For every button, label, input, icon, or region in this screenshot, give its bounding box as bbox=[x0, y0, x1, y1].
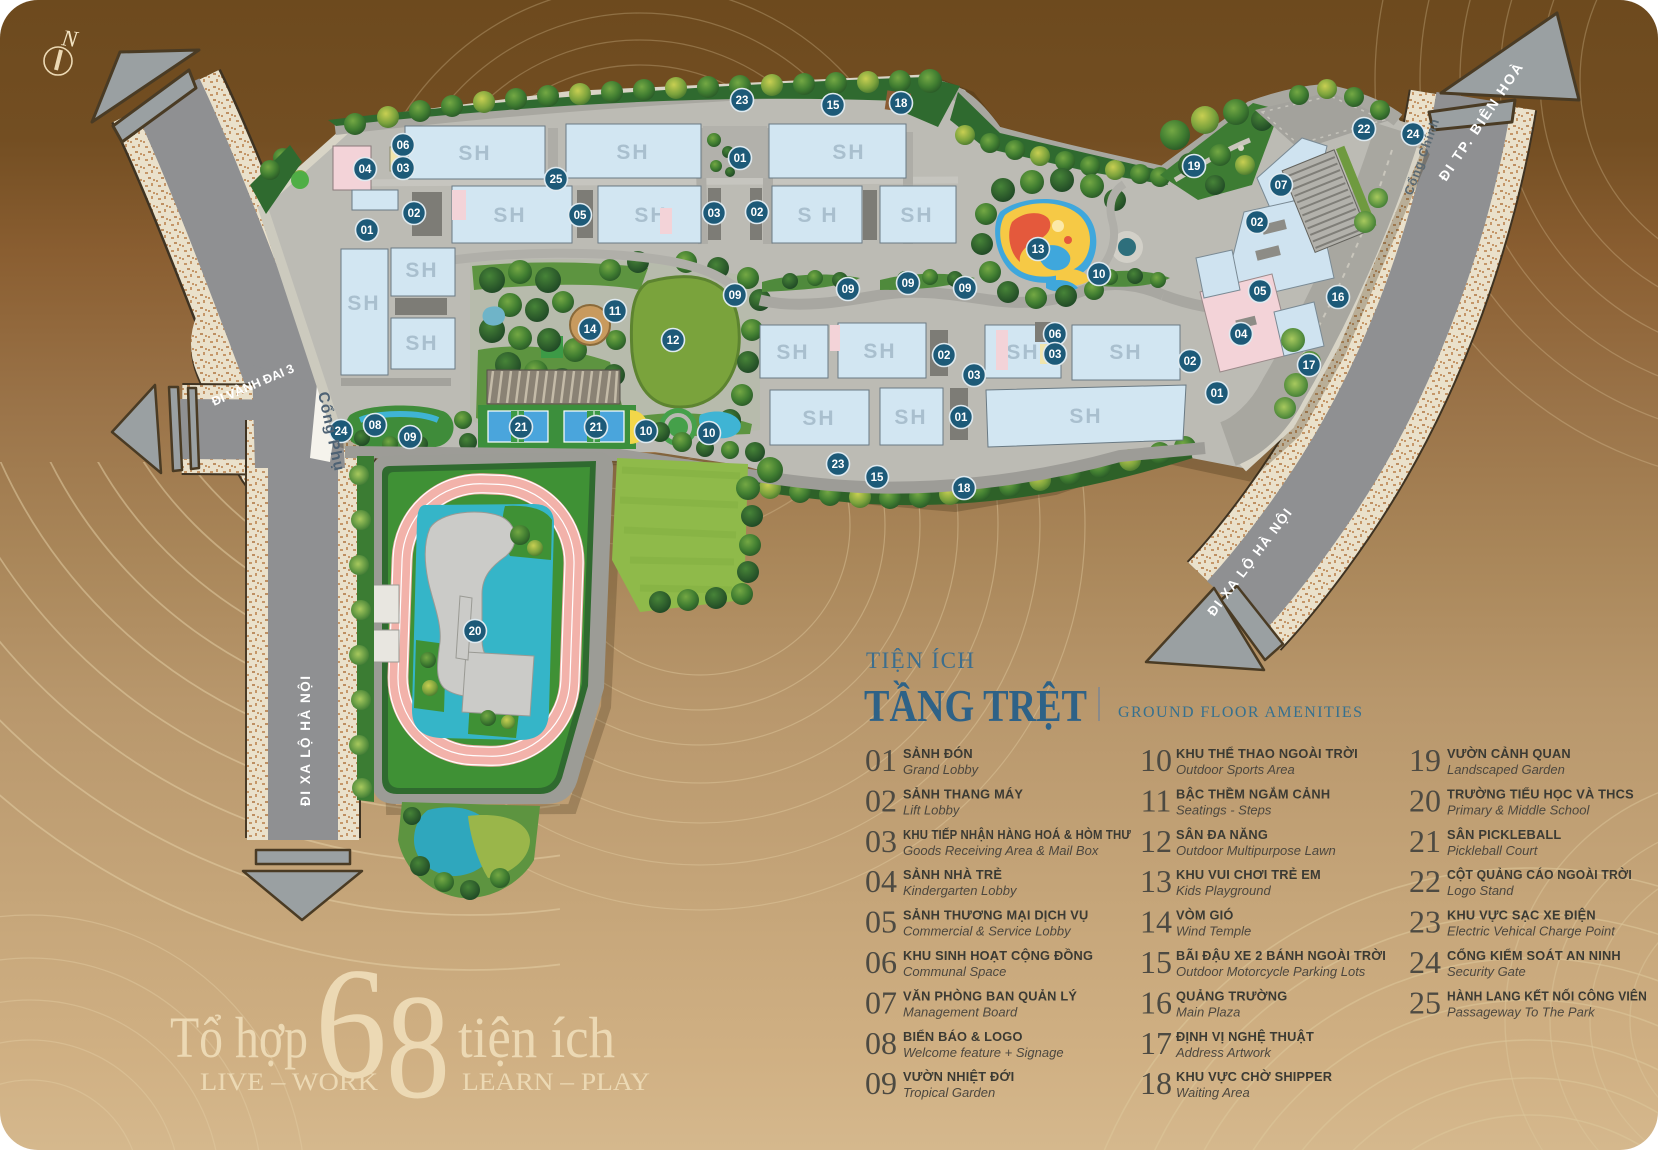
svg-text:01: 01 bbox=[865, 742, 897, 778]
svg-text:tiện ích: tiện ích bbox=[458, 1005, 615, 1070]
svg-text:Pickleball Court: Pickleball Court bbox=[1447, 843, 1539, 858]
svg-text:SẢNH THANG MÁY: SẢNH THANG MÁY bbox=[903, 786, 1023, 801]
svg-text:21: 21 bbox=[1409, 823, 1441, 859]
svg-text:Management Board: Management Board bbox=[903, 1004, 1018, 1019]
svg-text:01: 01 bbox=[361, 225, 374, 237]
svg-text:SẢNH ĐÓN: SẢNH ĐÓN bbox=[903, 746, 973, 761]
svg-text:02: 02 bbox=[408, 208, 421, 220]
svg-text:SH: SH bbox=[493, 204, 526, 227]
svg-text:09: 09 bbox=[902, 278, 915, 290]
svg-text:23: 23 bbox=[1409, 904, 1441, 940]
svg-text:16: 16 bbox=[1140, 984, 1172, 1020]
svg-text:24: 24 bbox=[1409, 944, 1441, 980]
svg-text:SH: SH bbox=[1069, 405, 1102, 428]
svg-text:CỔNG KIỂM SOÁT AN NINH: CỔNG KIỂM SOÁT AN NINH bbox=[1447, 948, 1621, 963]
svg-text:Kindergarten Lobby: Kindergarten Lobby bbox=[903, 883, 1018, 898]
svg-text:15: 15 bbox=[827, 100, 840, 112]
svg-text:09: 09 bbox=[729, 290, 742, 302]
svg-text:02: 02 bbox=[938, 350, 951, 362]
svg-text:KHU VUI CHƠI TRẺ EM: KHU VUI CHƠI TRẺ EM bbox=[1176, 867, 1321, 882]
svg-text:02: 02 bbox=[865, 782, 897, 818]
svg-text:SH: SH bbox=[405, 332, 438, 355]
svg-text:15: 15 bbox=[871, 472, 884, 484]
svg-text:10: 10 bbox=[1140, 742, 1172, 778]
svg-text:11: 11 bbox=[609, 306, 622, 318]
svg-text:VƯỜN NHIỆT ĐỚI: VƯỜN NHIỆT ĐỚI bbox=[903, 1069, 1014, 1084]
svg-text:07: 07 bbox=[1275, 180, 1288, 192]
svg-text:BÃI ĐẬU XE 2 BÁNH NGOÀI TRỜI: BÃI ĐẬU XE 2 BÁNH NGOÀI TRỜI bbox=[1176, 948, 1386, 963]
svg-text:Outdoor Motorcycle Parking Lot: Outdoor Motorcycle Parking Lots bbox=[1176, 964, 1366, 979]
svg-text:LEARN – PLAY: LEARN – PLAY bbox=[462, 1069, 650, 1096]
svg-text:Electric Vehical Charge Point: Electric Vehical Charge Point bbox=[1447, 924, 1616, 939]
svg-text:SH: SH bbox=[832, 141, 865, 164]
svg-text:20: 20 bbox=[1409, 782, 1441, 818]
svg-text:08: 08 bbox=[865, 1025, 897, 1061]
svg-text:13: 13 bbox=[1032, 244, 1045, 256]
svg-text:21: 21 bbox=[590, 422, 603, 434]
svg-text:Landscaped Garden: Landscaped Garden bbox=[1447, 762, 1565, 777]
svg-text:03: 03 bbox=[1049, 349, 1062, 361]
svg-text:VĂN PHÒNG BAN QUẢN LÝ: VĂN PHÒNG BAN QUẢN LÝ bbox=[903, 988, 1077, 1003]
svg-text:23: 23 bbox=[736, 95, 749, 107]
svg-text:BIỂN BÁO & LOGO: BIỂN BÁO & LOGO bbox=[903, 1029, 1023, 1044]
svg-text:SH: SH bbox=[863, 340, 896, 363]
svg-text:14: 14 bbox=[584, 324, 597, 336]
svg-text:Outdoor Multipurpose Lawn: Outdoor Multipurpose Lawn bbox=[1176, 843, 1336, 858]
svg-text:Address Artwork: Address Artwork bbox=[1175, 1045, 1272, 1060]
svg-text:04: 04 bbox=[1235, 329, 1248, 341]
svg-text:Tổ hợp: Tổ hợp bbox=[170, 1005, 308, 1070]
svg-text:Logo Stand: Logo Stand bbox=[1447, 883, 1514, 898]
svg-text:09: 09 bbox=[865, 1065, 897, 1101]
svg-text:06: 06 bbox=[1049, 329, 1062, 341]
svg-text:KHU VỰC CHỜ SHIPPER: KHU VỰC CHỜ SHIPPER bbox=[1176, 1069, 1332, 1084]
svg-text:17: 17 bbox=[1140, 1025, 1172, 1061]
svg-text:TRƯỜNG TIỂU HỌC VÀ THCS: TRƯỜNG TIỂU HỌC VÀ THCS bbox=[1447, 786, 1634, 801]
svg-text:SH: SH bbox=[405, 259, 438, 282]
svg-text:Wind Temple: Wind Temple bbox=[1176, 924, 1251, 939]
svg-text:10: 10 bbox=[703, 428, 716, 440]
svg-text:LIVE – WORK: LIVE – WORK bbox=[200, 1069, 378, 1096]
svg-text:Outdoor Sports Area: Outdoor Sports Area bbox=[1176, 762, 1295, 777]
svg-text:12: 12 bbox=[667, 335, 680, 347]
svg-text:Main Plaza: Main Plaza bbox=[1176, 1004, 1240, 1019]
svg-text:02: 02 bbox=[1251, 217, 1264, 229]
svg-text:HÀNH LANG KẾT NỐI CÔNG VIÊN: HÀNH LANG KẾT NỐI CÔNG VIÊN bbox=[1447, 988, 1647, 1003]
svg-text:Goods Receiving Area & Mail Bo: Goods Receiving Area & Mail Box bbox=[903, 843, 1099, 858]
svg-text:20: 20 bbox=[469, 626, 482, 638]
svg-text:SÂN ĐA NĂNG: SÂN ĐA NĂNG bbox=[1176, 827, 1268, 842]
svg-text:SÂN PICKLEBALL: SÂN PICKLEBALL bbox=[1447, 827, 1561, 842]
svg-text:Primary & Middle School: Primary & Middle School bbox=[1447, 802, 1590, 817]
svg-text:10: 10 bbox=[640, 426, 653, 438]
svg-text:Kids Playground: Kids Playground bbox=[1176, 883, 1271, 898]
svg-text:KHU SINH HOẠT CỘNG ĐỒNG: KHU SINH HOẠT CỘNG ĐỒNG bbox=[903, 948, 1093, 963]
svg-text:16: 16 bbox=[1332, 292, 1345, 304]
svg-text:SH: SH bbox=[458, 142, 491, 165]
svg-text:8: 8 bbox=[386, 964, 450, 1130]
svg-text:03: 03 bbox=[708, 208, 721, 220]
svg-text:KHU THỂ THAO NGOÀI TRỜI: KHU THỂ THAO NGOÀI TRỜI bbox=[1176, 746, 1358, 761]
svg-text:SH: SH bbox=[1006, 341, 1039, 364]
svg-text:06: 06 bbox=[397, 140, 410, 152]
svg-text:SẢNH THƯƠNG MẠI DỊCH VỤ: SẢNH THƯƠNG MẠI DỊCH VỤ bbox=[903, 908, 1088, 923]
svg-text:Lift Lobby: Lift Lobby bbox=[903, 802, 961, 817]
svg-text:Waiting Area: Waiting Area bbox=[1176, 1085, 1250, 1100]
svg-text:Communal Space: Communal Space bbox=[903, 964, 1006, 979]
svg-text:01: 01 bbox=[734, 153, 747, 165]
svg-text:13: 13 bbox=[1140, 863, 1172, 899]
svg-text:03: 03 bbox=[968, 370, 981, 382]
svg-text:12: 12 bbox=[1140, 823, 1172, 859]
svg-text:Grand Lobby: Grand Lobby bbox=[903, 762, 980, 777]
svg-text:09: 09 bbox=[959, 283, 972, 295]
svg-text:SH: SH bbox=[1109, 341, 1142, 364]
svg-text:07: 07 bbox=[865, 984, 897, 1020]
svg-text:SH: SH bbox=[776, 341, 809, 364]
svg-text:Security Gate: Security Gate bbox=[1447, 964, 1526, 979]
svg-text:22: 22 bbox=[1358, 124, 1371, 136]
svg-text:01: 01 bbox=[1211, 388, 1224, 400]
svg-text:KHU TIẾP NHẬN HÀNG HOÁ & HÒM T: KHU TIẾP NHẬN HÀNG HOÁ & HÒM THƯ bbox=[903, 827, 1131, 842]
svg-text:SẢNH NHÀ TRẺ: SẢNH NHÀ TRẺ bbox=[903, 867, 1002, 882]
svg-text:04: 04 bbox=[359, 164, 372, 176]
svg-text:06: 06 bbox=[865, 944, 897, 980]
svg-text:Passageway To The Park: Passageway To The Park bbox=[1447, 1004, 1596, 1019]
svg-text:CỘT QUẢNG CÁO NGOÀI TRỜI: CỘT QUẢNG CÁO NGOÀI TRỜI bbox=[1447, 867, 1632, 882]
svg-text:09: 09 bbox=[404, 432, 417, 444]
svg-text:SH: SH bbox=[616, 141, 649, 164]
svg-text:19: 19 bbox=[1409, 742, 1441, 778]
svg-text:QUẢNG TRƯỜNG: QUẢNG TRƯỜNG bbox=[1176, 988, 1287, 1003]
svg-text:25: 25 bbox=[1409, 984, 1441, 1020]
svg-text:19: 19 bbox=[1188, 161, 1201, 173]
svg-text:18: 18 bbox=[958, 483, 971, 495]
svg-text:25: 25 bbox=[550, 174, 563, 186]
svg-text:GROUND FLOOR AMENITIES: GROUND FLOOR AMENITIES bbox=[1118, 704, 1362, 721]
svg-text:Commercial & Service Lobby: Commercial & Service Lobby bbox=[903, 924, 1072, 939]
svg-text:SH: SH bbox=[802, 407, 835, 430]
svg-text:BẬC THỀM NGẮM CẢNH: BẬC THỀM NGẮM CẢNH bbox=[1176, 786, 1330, 801]
svg-text:SH: SH bbox=[894, 406, 927, 429]
svg-text:24: 24 bbox=[1407, 129, 1420, 141]
svg-text:Welcome feature + Signage: Welcome feature + Signage bbox=[903, 1045, 1064, 1060]
svg-text:17: 17 bbox=[1303, 360, 1316, 372]
svg-text:01: 01 bbox=[955, 412, 968, 424]
svg-text:15: 15 bbox=[1140, 944, 1172, 980]
svg-text:TIỆN ÍCH: TIỆN ÍCH bbox=[866, 648, 974, 673]
svg-text:S H: S H bbox=[797, 204, 838, 227]
svg-text:TẦNG TRỆT: TẦNG TRỆT bbox=[864, 679, 1087, 731]
svg-text:03: 03 bbox=[865, 823, 897, 859]
svg-text:21: 21 bbox=[515, 422, 528, 434]
svg-text:05: 05 bbox=[574, 210, 587, 222]
svg-text:VÒM GIÓ: VÒM GIÓ bbox=[1176, 908, 1234, 923]
svg-text:SH: SH bbox=[900, 204, 933, 227]
svg-text:ĐỊNH VỊ NGHỆ THUẬT: ĐỊNH VỊ NGHỆ THUẬT bbox=[1176, 1029, 1314, 1044]
svg-text:05: 05 bbox=[865, 904, 897, 940]
svg-text:Tropical Garden: Tropical Garden bbox=[903, 1085, 995, 1100]
svg-text:ĐI XA LỘ HÀ NỘI: ĐI XA LỘ HÀ NỘI bbox=[298, 674, 313, 806]
svg-text:03: 03 bbox=[397, 163, 410, 175]
svg-text:10: 10 bbox=[1093, 269, 1106, 281]
svg-text:09: 09 bbox=[842, 284, 855, 296]
svg-text:08: 08 bbox=[369, 420, 382, 432]
svg-text:18: 18 bbox=[895, 98, 908, 110]
svg-text:22: 22 bbox=[1409, 863, 1441, 899]
svg-text:05: 05 bbox=[1254, 286, 1267, 298]
svg-text:11: 11 bbox=[1141, 782, 1172, 818]
svg-text:18: 18 bbox=[1140, 1065, 1172, 1101]
svg-text:VƯỜN CẢNH QUAN: VƯỜN CẢNH QUAN bbox=[1447, 746, 1571, 761]
svg-text:SH: SH bbox=[347, 292, 380, 315]
svg-text:14: 14 bbox=[1140, 904, 1172, 940]
svg-text:KHU VỰC SẠC XE ĐIỆN: KHU VỰC SẠC XE ĐIỆN bbox=[1447, 908, 1596, 923]
svg-text:02: 02 bbox=[1184, 356, 1197, 368]
svg-text:02: 02 bbox=[751, 207, 764, 219]
svg-text:23: 23 bbox=[832, 459, 845, 471]
svg-text:04: 04 bbox=[865, 863, 897, 899]
svg-text:Seatings - Steps: Seatings - Steps bbox=[1176, 802, 1272, 817]
